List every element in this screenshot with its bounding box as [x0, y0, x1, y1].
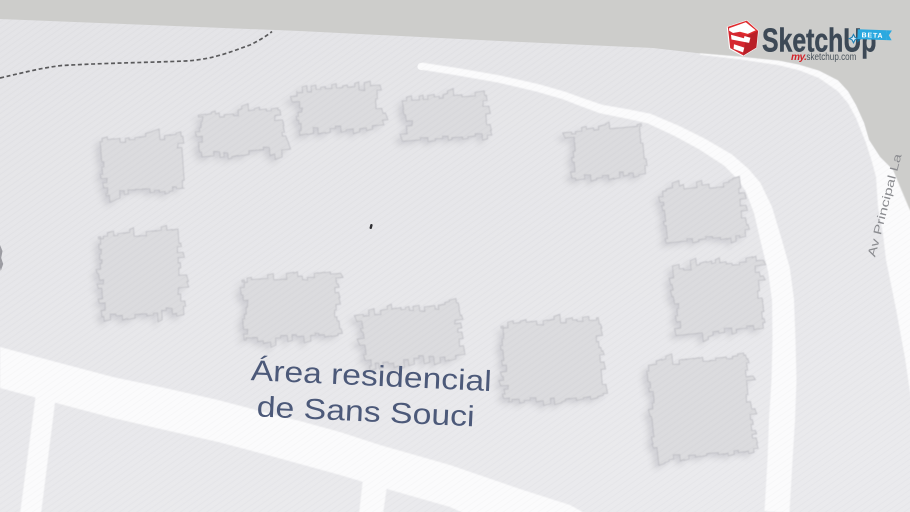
svg-text:my.sketchup.com: my.sketchup.com: [791, 52, 856, 63]
svg-text:BETA: BETA: [861, 32, 883, 40]
